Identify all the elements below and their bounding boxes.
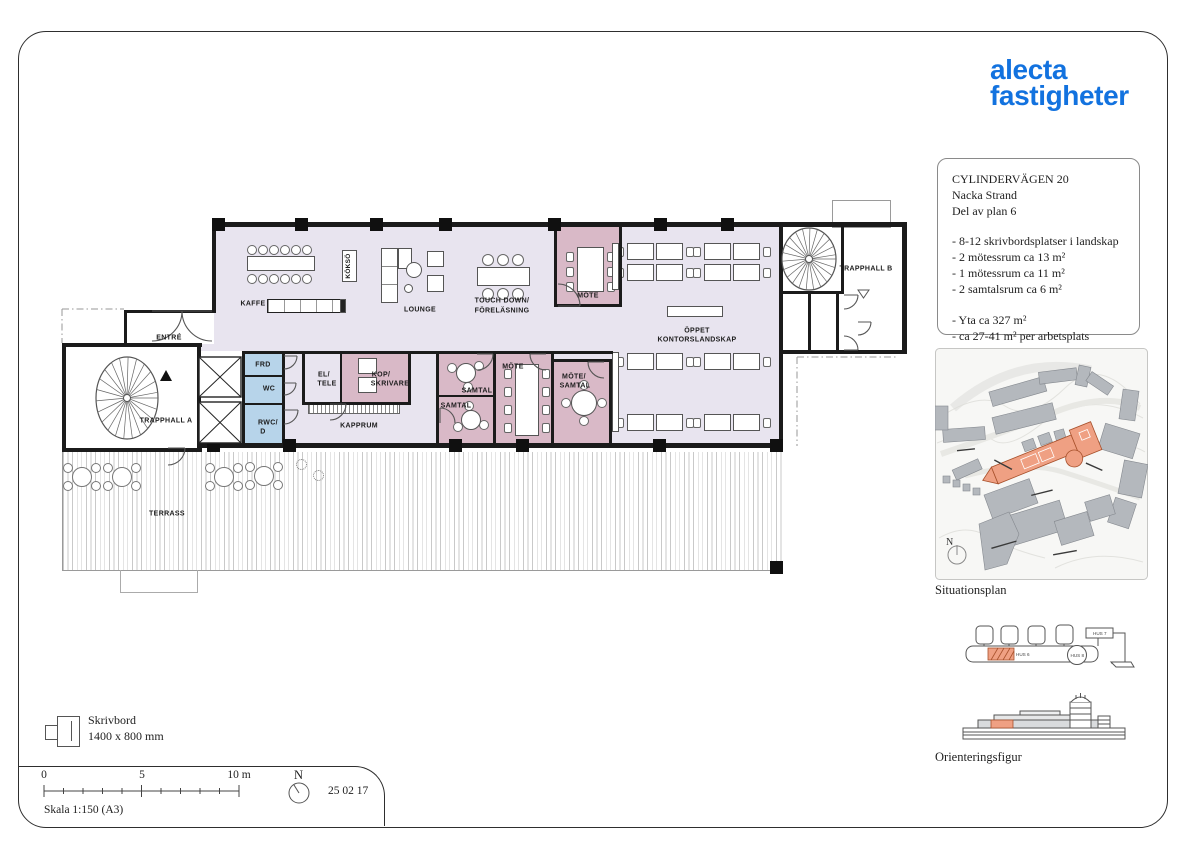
- column: [207, 439, 220, 452]
- legend-desk-dimensions: 1400 x 800 mm: [88, 729, 164, 744]
- scale-bar: [40, 783, 250, 799]
- project-location: Nacka Strand: [952, 188, 1129, 204]
- room-label-trapphall-a: TRAPPHALL A: [140, 418, 193, 427]
- desk: [704, 353, 731, 370]
- feature-item: - 2 samtalsrum ca 6 m²: [952, 282, 1129, 298]
- desk: [733, 414, 760, 431]
- stair-tread: [809, 246, 834, 259]
- column: [212, 218, 225, 231]
- desk-chair: [763, 247, 771, 257]
- orientering-caption: Orienteringsfigur: [935, 750, 1022, 765]
- kaffe-counter-end: [340, 299, 346, 313]
- chair: [561, 398, 571, 408]
- wall: [551, 351, 554, 445]
- chair: [504, 423, 512, 433]
- wall: [62, 343, 66, 452]
- desk: [627, 243, 654, 260]
- wall: [836, 293, 839, 352]
- stair-tread: [785, 244, 809, 259]
- terrace-table: [72, 467, 92, 487]
- scale-text: Skala 1:150 (A3): [44, 804, 123, 816]
- terrace-chair: [131, 463, 141, 473]
- sofa: [381, 248, 398, 303]
- room-label-mote-mid: MÖTE: [502, 364, 524, 373]
- chair: [269, 245, 279, 255]
- wall: [619, 224, 622, 307]
- logo-line2: fastigheter: [990, 83, 1129, 109]
- wall: [554, 304, 622, 307]
- wall: [551, 359, 611, 362]
- terrace-chair: [63, 481, 73, 491]
- chair: [280, 274, 290, 284]
- column: [653, 439, 666, 452]
- hus7-label: HUS 7: [1093, 631, 1107, 636]
- stair-tread: [799, 259, 809, 288]
- wall: [242, 375, 284, 377]
- terrace-chair: [273, 480, 283, 490]
- room-label-samtal-upper: SAMTAL: [462, 388, 493, 397]
- terrace-chair: [131, 481, 141, 491]
- stair-center: [806, 256, 813, 263]
- desk-chair: [693, 357, 701, 367]
- desk: [627, 414, 654, 431]
- legend-desk-icon: [57, 716, 80, 747]
- stair-tread: [809, 259, 832, 275]
- column: [770, 561, 783, 574]
- room-label-frd: FRD: [255, 362, 270, 371]
- plant: [313, 470, 324, 481]
- chair: [542, 369, 550, 379]
- wall: [302, 402, 411, 405]
- column: [370, 218, 383, 231]
- column: [770, 439, 783, 452]
- scale-tick-0: 0: [41, 769, 47, 781]
- desk: [733, 243, 760, 260]
- spiral-stair: [782, 228, 836, 290]
- floor-trapphall-a: [65, 346, 198, 449]
- column: [516, 439, 529, 452]
- room-label-touchdown: FÖRELÄSNING: [475, 308, 530, 317]
- room-label-trapphall-b: TRAPPHALL B: [839, 266, 892, 275]
- room-label-samtal-lower: SAMTAL: [441, 403, 472, 412]
- desk: [656, 264, 683, 281]
- chair: [566, 282, 574, 292]
- stair-tread: [809, 259, 814, 290]
- desk: [733, 353, 760, 370]
- door-arc: [844, 336, 858, 350]
- room-label-lounge: LOUNGE: [404, 307, 436, 316]
- wall: [340, 351, 342, 405]
- terrace-chair: [245, 480, 255, 490]
- stair-tread: [806, 259, 809, 290]
- lounge-table: [406, 262, 422, 278]
- stair-tread: [790, 237, 809, 259]
- wall: [124, 310, 216, 313]
- chair: [504, 387, 512, 397]
- chair: [597, 398, 607, 408]
- terrace-chair: [245, 462, 255, 472]
- situationsplan-map: N: [935, 348, 1148, 580]
- stair-tread: [809, 255, 836, 259]
- terrace-table: [214, 467, 234, 487]
- stair-tread: [809, 228, 810, 259]
- room-label-mote-samtal: SAMTAL: [560, 383, 591, 392]
- room-label-el-tele: EL/: [318, 372, 330, 381]
- room-label-kokso: KÖKSÖ: [346, 253, 353, 278]
- desk-chair: [693, 268, 701, 278]
- total-item: - Yta ca 327 m²: [952, 313, 1129, 329]
- desk: [704, 414, 731, 431]
- wall: [408, 351, 411, 405]
- terrace-chair: [103, 481, 113, 491]
- chair: [291, 274, 301, 284]
- wall: [436, 351, 439, 445]
- wall: [302, 351, 305, 405]
- stair-tread: [784, 259, 809, 270]
- chair: [579, 416, 589, 426]
- chair: [512, 254, 524, 266]
- room-label-kop: KOP/: [372, 372, 391, 381]
- chair: [291, 245, 301, 255]
- stair-tread: [782, 259, 809, 261]
- orientation-figure-elevation: [958, 688, 1136, 750]
- terrace-chair: [205, 463, 215, 473]
- desk: [656, 414, 683, 431]
- terrace-chair: [91, 463, 101, 473]
- room-label-entre: ENTRÉ: [156, 335, 181, 344]
- wall: [609, 359, 612, 445]
- terrace-chair: [103, 463, 113, 473]
- stair-tread: [809, 259, 827, 282]
- terrace-chair: [233, 481, 243, 491]
- wall: [841, 222, 844, 293]
- room-label-wc: WC: [263, 386, 275, 395]
- chair: [542, 387, 550, 397]
- terrace-chair: [205, 481, 215, 491]
- wall: [902, 222, 907, 354]
- scale-tick-10: 10 m: [227, 769, 250, 781]
- desk: [656, 243, 683, 260]
- desk-chair: [693, 247, 701, 257]
- desk: [627, 353, 654, 370]
- wall: [197, 343, 201, 452]
- wall: [212, 222, 216, 313]
- room-label-rwc: D: [260, 429, 265, 438]
- chair: [258, 245, 268, 255]
- meeting-table: [515, 364, 539, 436]
- feature-item: - 8-12 skrivbordsplatser i landskap: [952, 234, 1129, 250]
- terrace-step: [120, 570, 198, 593]
- chair: [542, 405, 550, 415]
- hus8-label: HUS 8: [1071, 653, 1085, 658]
- chair: [302, 274, 312, 284]
- terrace-chair: [233, 463, 243, 473]
- terrace-chair: [273, 462, 283, 472]
- side-table: [404, 284, 413, 293]
- stair-tread: [802, 229, 809, 259]
- wall: [493, 351, 496, 445]
- chair: [247, 245, 257, 255]
- wall: [779, 291, 844, 294]
- wall: [554, 224, 557, 307]
- wall: [242, 403, 284, 405]
- orientation-figure-plan: HUS 6 HUS 7 HUS 8: [958, 622, 1136, 680]
- wall: [124, 310, 127, 347]
- stair-tread: [809, 230, 817, 259]
- chair: [497, 254, 509, 266]
- desk: [704, 243, 731, 260]
- chair: [280, 245, 290, 255]
- terrace-table: [254, 466, 274, 486]
- room-label-kaffe: KAFFE: [240, 301, 265, 310]
- room-label-rwc: RWC/: [258, 420, 278, 429]
- desk-chair: [763, 357, 771, 367]
- stair-tread: [809, 239, 830, 259]
- shelf: [612, 352, 619, 432]
- desk: [627, 264, 654, 281]
- terrace-table: [112, 467, 132, 487]
- project-info-box: CYLINDERVÄGEN 20 Nacka Strand Del av pla…: [937, 158, 1140, 335]
- project-floor: Del av plan 6: [952, 204, 1129, 220]
- wall: [808, 293, 811, 352]
- stair-tread: [783, 253, 809, 259]
- chair: [258, 274, 268, 284]
- scale-tick-5: 5: [139, 769, 145, 781]
- wall: [779, 350, 907, 354]
- wall: [779, 222, 783, 448]
- shelf: [612, 243, 619, 290]
- room-label-touchdown: TOUCH DOWN/: [475, 298, 530, 307]
- desk-chair: [693, 418, 701, 428]
- plant: [296, 459, 307, 470]
- column: [439, 218, 452, 231]
- floor-elevators: [197, 351, 243, 444]
- situationsplan-caption: Situationsplan: [935, 583, 1007, 598]
- chair: [302, 245, 312, 255]
- room-label-mote-samtal: MÖTE/: [562, 374, 586, 383]
- feature-item: - 1 mötessrum ca 11 m²: [952, 266, 1129, 282]
- sitemap-north-label: N: [946, 537, 953, 548]
- chair: [482, 254, 494, 266]
- armchair: [427, 275, 444, 292]
- room-label-oppet: ÖPPET: [684, 328, 709, 337]
- chair: [269, 274, 279, 284]
- round-table: [456, 363, 476, 383]
- room-label-terrass: TERRASS: [149, 511, 185, 520]
- stair-tread: [787, 259, 809, 277]
- scale-box: 0 5 10 m Skala 1:150 (A3) N 25 02 17: [18, 766, 385, 826]
- meeting-table: [577, 247, 604, 292]
- desk: [733, 264, 760, 281]
- wall: [62, 343, 202, 347]
- terrace-chair: [63, 463, 73, 473]
- touchdown-table: [477, 267, 530, 286]
- chair: [566, 267, 574, 277]
- wall: [242, 351, 245, 445]
- conference-table: [247, 256, 315, 271]
- room-label-el-tele: TELE: [317, 381, 336, 390]
- column: [721, 218, 734, 231]
- center-table: [667, 306, 723, 317]
- column: [283, 439, 296, 452]
- armchair: [427, 251, 444, 267]
- round-table: [461, 410, 481, 430]
- desk: [656, 353, 683, 370]
- desk-chair: [763, 418, 771, 428]
- chair: [566, 252, 574, 262]
- wall: [62, 448, 202, 452]
- chair: [542, 423, 550, 433]
- drawing-sheet: alecta fastigheter CYLINDERVÄGEN 20 Nack…: [0, 0, 1187, 844]
- door-arc: [858, 322, 871, 335]
- kaffe-counter: [267, 299, 344, 313]
- chair: [504, 405, 512, 415]
- room-label-kapprum: KAPPRUM: [340, 423, 378, 432]
- terrace-chair: [91, 481, 101, 491]
- hus6-label: HUS 6: [1016, 652, 1030, 657]
- column: [295, 218, 308, 231]
- alecta-logo: alecta fastigheter: [990, 57, 1129, 109]
- project-address: CYLINDERVÄGEN 20: [952, 172, 1129, 188]
- stair-tread: [809, 259, 835, 268]
- room-label-oppet: KONTORSLANDSKAP: [657, 337, 736, 346]
- room-label-mote-top: MÖTE: [577, 293, 599, 302]
- desk-chair: [763, 268, 771, 278]
- column: [548, 218, 561, 231]
- column: [654, 218, 667, 231]
- door-arc: [844, 295, 858, 309]
- stair-tread: [809, 259, 821, 287]
- round-table: [571, 390, 597, 416]
- chair: [247, 274, 257, 284]
- compass-icon: [286, 780, 312, 806]
- stair-tread: [796, 232, 810, 259]
- stair-b-marker: [858, 290, 869, 298]
- drawing-date: 25 02 17: [328, 785, 368, 797]
- room-label-kop: SKRIVARE: [371, 381, 409, 390]
- total-item: - ca 27-41 m² per arbetsplats: [952, 329, 1129, 345]
- wall: [242, 351, 613, 354]
- wall: [282, 351, 285, 445]
- stair-tread: [792, 259, 809, 283]
- legend-desk-label: Skrivbord: [88, 713, 136, 728]
- feature-item: - 2 mötessrum ca 13 m²: [952, 250, 1129, 266]
- coat-rack: [308, 404, 400, 414]
- column: [449, 439, 462, 452]
- desk: [704, 264, 731, 281]
- stair-tread: [809, 233, 824, 259]
